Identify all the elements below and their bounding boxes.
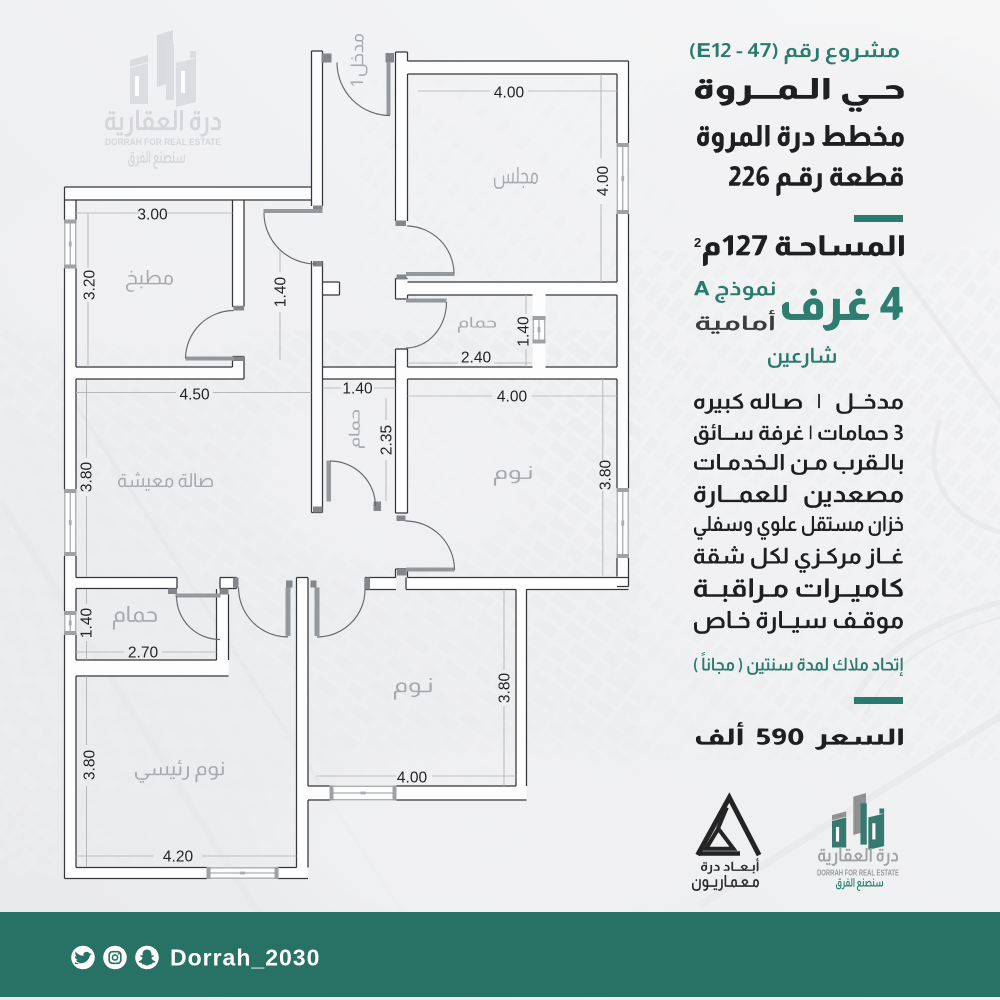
svg-text:Dorrah_2030: Dorrah_2030 (170, 945, 320, 971)
svg-text:DORRAH FOR REAL ESTATE: DORRAH FOR REAL ESTATE (817, 869, 899, 878)
svg-text:DORRAH FOR REAL ESTATE: DORRAH FOR REAL ESTATE (105, 137, 221, 148)
